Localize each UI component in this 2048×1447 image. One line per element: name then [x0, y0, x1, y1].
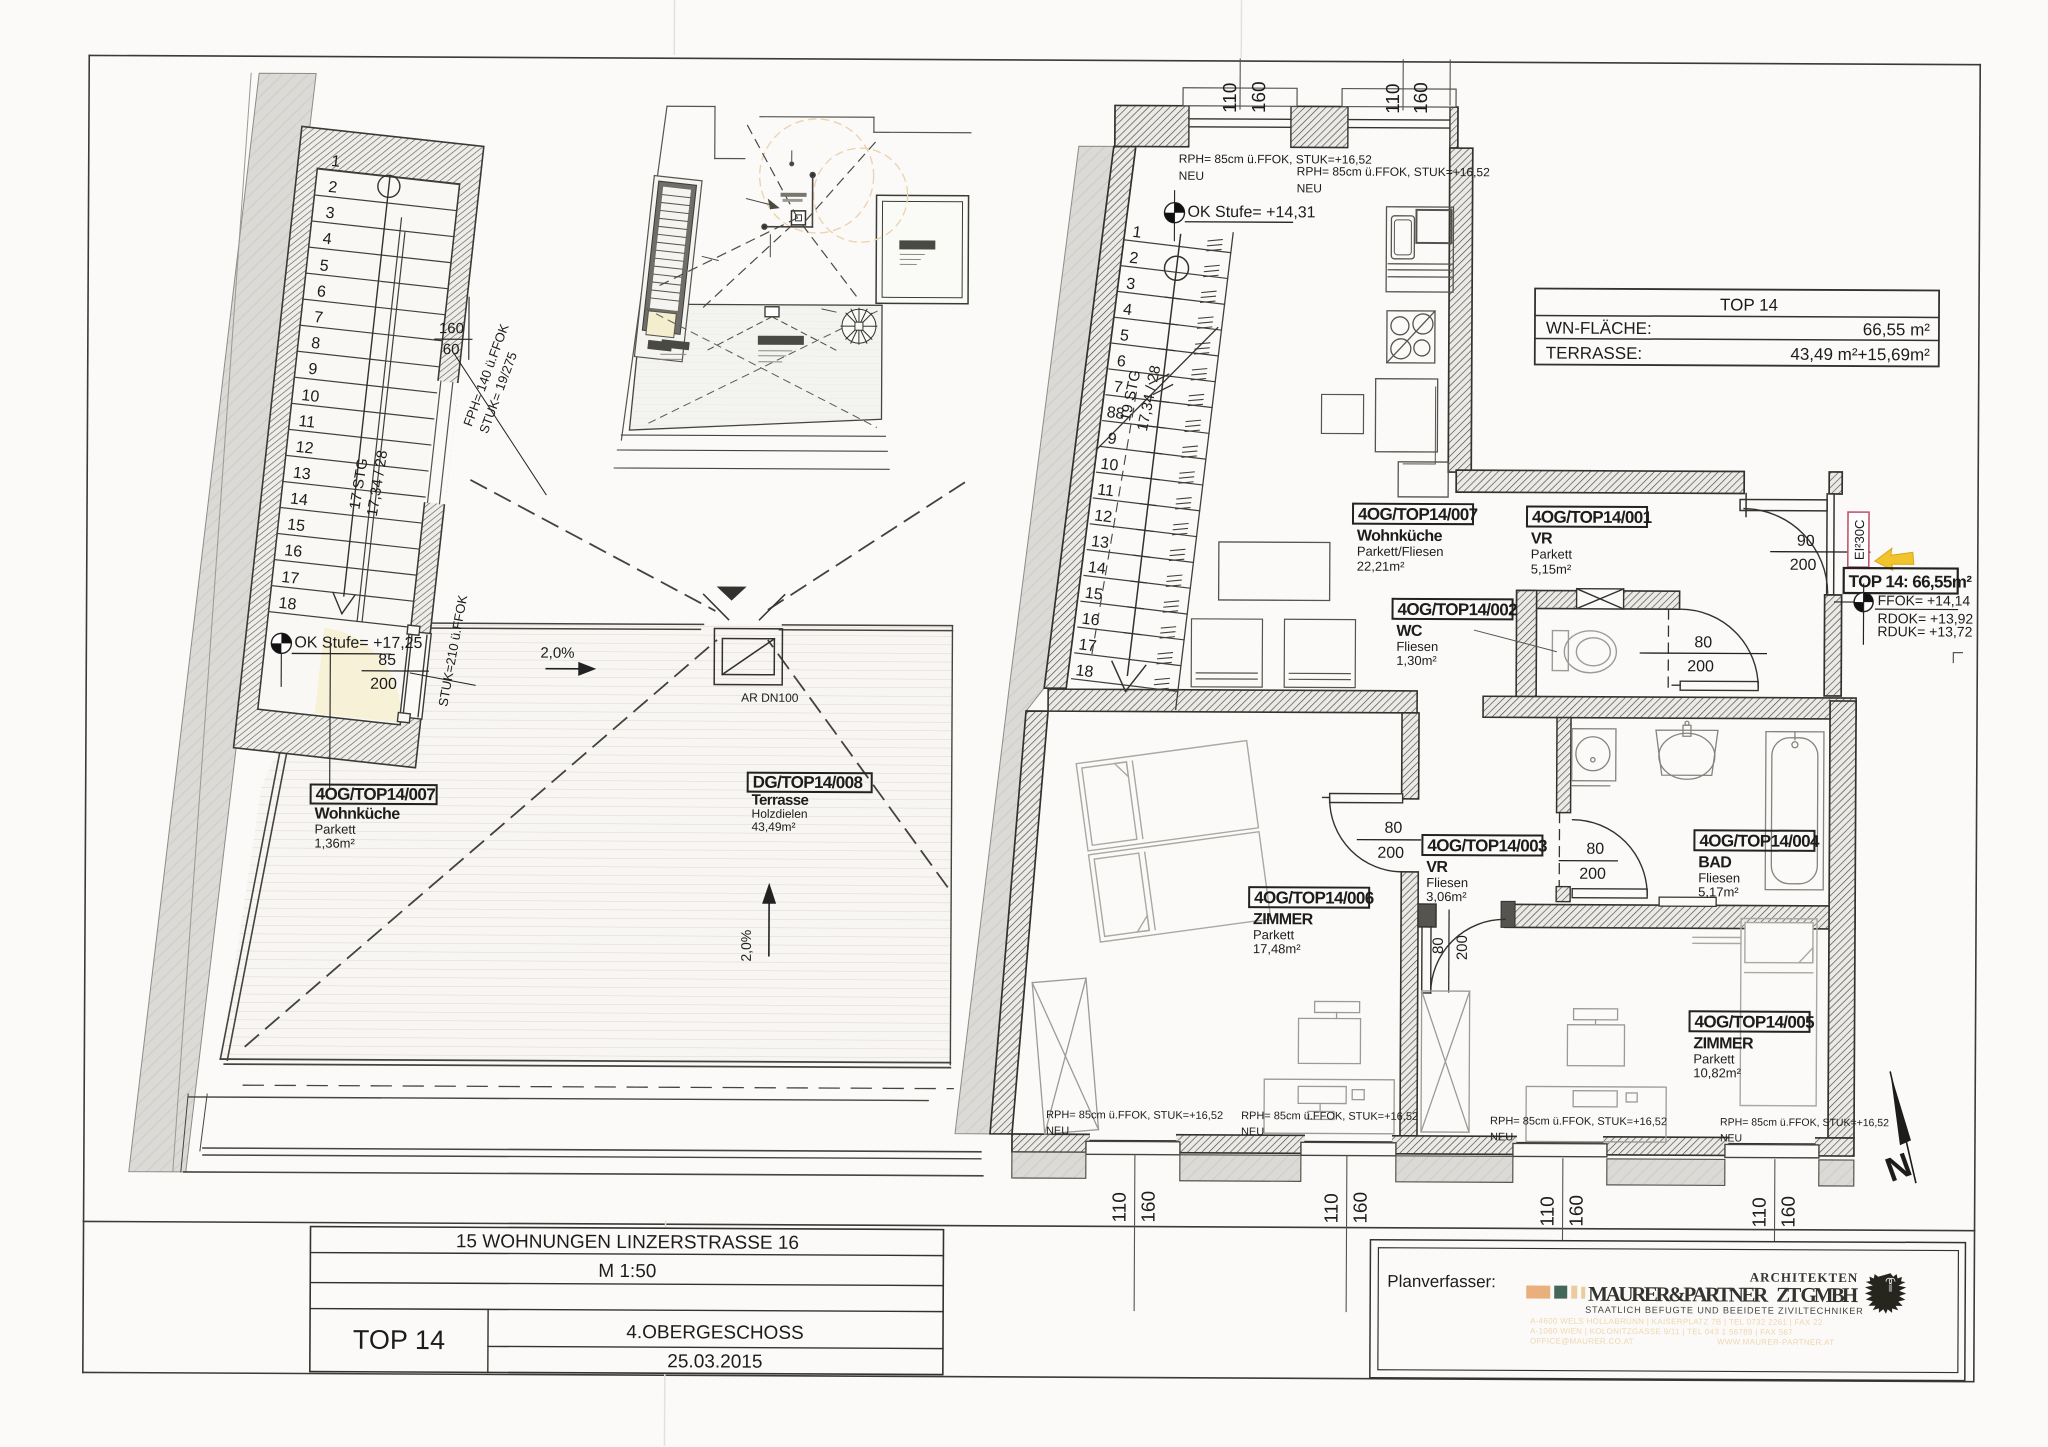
- svg-text:Fliesen: Fliesen: [1396, 639, 1438, 654]
- svg-text:18: 18: [278, 595, 298, 614]
- svg-text:4OG/TOP14/007: 4OG/TOP14/007: [316, 785, 436, 805]
- svg-text:5,17m²: 5,17m²: [1698, 884, 1739, 899]
- svg-text:OK Stufe= +17,25: OK Stufe= +17,25: [294, 634, 422, 652]
- svg-text:4OG/TOP14/005: 4OG/TOP14/005: [1695, 1012, 1815, 1032]
- svg-text:A-1060 WIEN | KOLONITZGASSE 9/: A-1060 WIEN | KOLONITZGASSE 9/11 | TEL 0…: [1530, 1326, 1793, 1336]
- svg-text:WN-FLÄCHE:: WN-FLÄCHE:: [1546, 319, 1652, 339]
- svg-text:2,0%: 2,0%: [738, 930, 754, 962]
- svg-text:Parkett: Parkett: [1693, 1051, 1735, 1066]
- svg-text:VR: VR: [1426, 859, 1448, 876]
- svg-text:ZIMMER: ZIMMER: [1253, 911, 1314, 928]
- svg-text:16: 16: [283, 542, 303, 561]
- svg-text:Wohnküche: Wohnküche: [315, 806, 401, 823]
- svg-text:ARCHITEKTEN: ARCHITEKTEN: [1750, 1270, 1859, 1286]
- svg-text:RDUK= +13,72: RDUK= +13,72: [1877, 623, 1972, 639]
- svg-text:80: 80: [1694, 634, 1712, 651]
- svg-text:FFOK= +14,14: FFOK= +14,14: [1878, 592, 1971, 608]
- svg-text:4OG/TOP14/007: 4OG/TOP14/007: [1358, 505, 1478, 525]
- svg-text:6: 6: [1116, 353, 1127, 371]
- svg-text:NEU: NEU: [1046, 1125, 1069, 1137]
- svg-text:M 1:50: M 1:50: [598, 1261, 656, 1282]
- svg-text:3: 3: [1125, 275, 1136, 293]
- svg-text:13: 13: [1090, 533, 1110, 552]
- svg-text:80: 80: [1430, 937, 1447, 954]
- svg-text:4OG/TOP14/002: 4OG/TOP14/002: [1398, 600, 1518, 620]
- svg-text:43,49m²: 43,49m²: [751, 820, 795, 834]
- svg-text:OFFICE@MAURER.CO.AT: OFFICE@MAURER.CO.AT: [1530, 1336, 1634, 1346]
- svg-text:MAURER&PARTNER: MAURER&PARTNER: [1588, 1282, 1769, 1307]
- svg-text:66,55 m²: 66,55 m²: [1863, 320, 1931, 339]
- svg-text:12: 12: [1093, 507, 1113, 526]
- svg-text:200: 200: [1579, 866, 1606, 883]
- svg-text:11: 11: [1096, 481, 1115, 500]
- svg-text:NEU: NEU: [1241, 1126, 1264, 1138]
- svg-text:NEU: NEU: [1720, 1132, 1742, 1144]
- svg-text:110: 110: [1110, 1192, 1131, 1222]
- svg-text:5: 5: [1119, 327, 1130, 345]
- svg-text:Planverfasser:: Planverfasser:: [1387, 1272, 1496, 1292]
- svg-text:Parkett: Parkett: [1531, 546, 1573, 561]
- svg-text:43,49 m²+15,69m²: 43,49 m²+15,69m²: [1790, 345, 1930, 365]
- svg-text:Fliesen: Fliesen: [1426, 875, 1468, 890]
- svg-text:25.03.2015: 25.03.2015: [667, 1351, 762, 1372]
- svg-text:10: 10: [301, 387, 321, 406]
- svg-text:Parkett: Parkett: [314, 822, 356, 837]
- svg-text:RPH= 85cm ü.FFOK, STUK=+16,52: RPH= 85cm ü.FFOK, STUK=+16,52: [1490, 1115, 1667, 1128]
- svg-text:14: 14: [289, 490, 309, 509]
- svg-text:OK Stufe= +14,31: OK Stufe= +14,31: [1187, 204, 1315, 222]
- svg-text:TOP 14: TOP 14: [353, 1325, 445, 1355]
- svg-text:N: N: [1881, 1146, 1917, 1190]
- svg-text:Wohnküche: Wohnküche: [1357, 528, 1443, 545]
- svg-text:15 WOHNUNGEN LINZERSTRASSE 16: 15 WOHNUNGEN LINZERSTRASSE 16: [456, 1231, 799, 1254]
- svg-text:RPH= 85cm ü.FFOK, STUK=+16,52: RPH= 85cm ü.FFOK, STUK=+16,52: [1241, 1110, 1418, 1123]
- svg-text:160: 160: [1351, 1192, 1372, 1224]
- svg-text:VR: VR: [1531, 530, 1553, 547]
- svg-text:200: 200: [1377, 845, 1404, 862]
- svg-text:9: 9: [1107, 430, 1118, 448]
- svg-text:14: 14: [1087, 559, 1107, 578]
- svg-text:Parkett/Fliesen: Parkett/Fliesen: [1357, 544, 1444, 559]
- svg-text:85: 85: [378, 652, 396, 669]
- svg-text:RPH= 85cm ü.FFOK, STUK=+16,52: RPH= 85cm ü.FFOK, STUK=+16,52: [1046, 1109, 1223, 1122]
- svg-text:110: 110: [1750, 1197, 1771, 1227]
- svg-text:AR DN100: AR DN100: [741, 691, 799, 705]
- svg-text:10,82m²: 10,82m²: [1693, 1065, 1741, 1080]
- svg-text:13: 13: [292, 465, 312, 484]
- svg-text:4OG/TOP14/004: 4OG/TOP14/004: [1699, 831, 1820, 851]
- svg-text:NEU: NEU: [1179, 169, 1204, 183]
- svg-text:160: 160: [439, 320, 464, 337]
- svg-text:WWW.MAURER-PARTNER.AT: WWW.MAURER-PARTNER.AT: [1717, 1337, 1834, 1347]
- svg-text:A-4600 WELS HOLLABRUNN | KAISE: A-4600 WELS HOLLABRUNN | KAISERPLATZ 7B …: [1530, 1316, 1823, 1326]
- svg-text:ZT GMBH: ZT GMBH: [1776, 1283, 1858, 1307]
- svg-text:TERRASSE:: TERRASSE:: [1546, 344, 1642, 363]
- svg-text:NEU: NEU: [1297, 181, 1322, 195]
- svg-text:90: 90: [1797, 533, 1815, 550]
- svg-text:160: 160: [1249, 81, 1270, 113]
- svg-text:4OG/TOP14/006: 4OG/TOP14/006: [1254, 888, 1374, 908]
- svg-text:18: 18: [1075, 662, 1095, 681]
- svg-text:110: 110: [1383, 83, 1404, 113]
- svg-text:80: 80: [1586, 841, 1604, 858]
- svg-text:3,06m²: 3,06m²: [1426, 889, 1467, 904]
- svg-text:160: 160: [1567, 1195, 1588, 1227]
- svg-text:17: 17: [281, 569, 301, 588]
- svg-text:160: 160: [1411, 82, 1432, 114]
- svg-text:BAD: BAD: [1698, 854, 1731, 871]
- svg-text:NEU: NEU: [1490, 1131, 1513, 1143]
- svg-text:110: 110: [1322, 1193, 1343, 1223]
- svg-text:200: 200: [1687, 658, 1714, 675]
- svg-text:1,36m²: 1,36m²: [314, 836, 355, 851]
- svg-text:TOP 14: TOP 14: [1720, 295, 1778, 314]
- svg-text:22,21m²: 22,21m²: [1357, 559, 1405, 574]
- svg-text:110: 110: [1220, 83, 1241, 113]
- svg-text:WC: WC: [1396, 623, 1423, 640]
- svg-text:12: 12: [295, 439, 315, 458]
- svg-text:4.OBERGESCHOSS: 4.OBERGESCHOSS: [626, 1322, 803, 1344]
- svg-text:110: 110: [1538, 1196, 1559, 1226]
- svg-text:200: 200: [1454, 935, 1471, 960]
- svg-text:STAATLICH BEFUGTE UND BEEIDETE: STAATLICH BEFUGTE UND BEEIDETE ZIVILTECH…: [1585, 1305, 1864, 1316]
- svg-text:Parkett: Parkett: [1253, 927, 1295, 942]
- svg-text:DG/TOP14/008: DG/TOP14/008: [753, 773, 863, 793]
- svg-text:15: 15: [286, 516, 306, 535]
- svg-text:1: 1: [1132, 224, 1143, 242]
- svg-text:10: 10: [1100, 456, 1120, 475]
- svg-text:4OG/TOP14/003: 4OG/TOP14/003: [1427, 836, 1547, 856]
- svg-text:RPH= 85cm ü.FFOK, STUK=+16,52: RPH= 85cm ü.FFOK, STUK=+16,52: [1297, 164, 1490, 179]
- svg-text:EI²30C: EI²30C: [1852, 520, 1867, 561]
- svg-text:160: 160: [1779, 1196, 1800, 1228]
- svg-text:RPH= 85cm ü.FFOK, STUK=+16,52: RPH= 85cm ü.FFOK, STUK=+16,52: [1720, 1116, 1889, 1129]
- svg-text:2,0%: 2,0%: [540, 645, 574, 662]
- svg-text:11: 11: [298, 413, 316, 432]
- svg-text:1,30m²: 1,30m²: [1396, 653, 1437, 668]
- svg-text:160: 160: [1139, 1191, 1160, 1223]
- svg-text:4: 4: [1122, 301, 1133, 319]
- svg-text:TOP 14: 66,55m²: TOP 14: 66,55m²: [1849, 572, 1973, 592]
- svg-text:200: 200: [370, 676, 397, 693]
- svg-text:17,48m²: 17,48m²: [1253, 941, 1301, 956]
- svg-text:60: 60: [443, 341, 460, 358]
- svg-text:2: 2: [1128, 250, 1139, 268]
- svg-text:ZIMMER: ZIMMER: [1693, 1035, 1754, 1052]
- svg-text:4OG/TOP14/001: 4OG/TOP14/001: [1532, 507, 1652, 527]
- svg-text:17: 17: [1078, 636, 1098, 655]
- svg-text:80: 80: [1384, 820, 1402, 837]
- svg-text:Fliesen: Fliesen: [1698, 870, 1740, 885]
- svg-text:200: 200: [1790, 557, 1817, 574]
- svg-text:5,15m²: 5,15m²: [1531, 561, 1572, 576]
